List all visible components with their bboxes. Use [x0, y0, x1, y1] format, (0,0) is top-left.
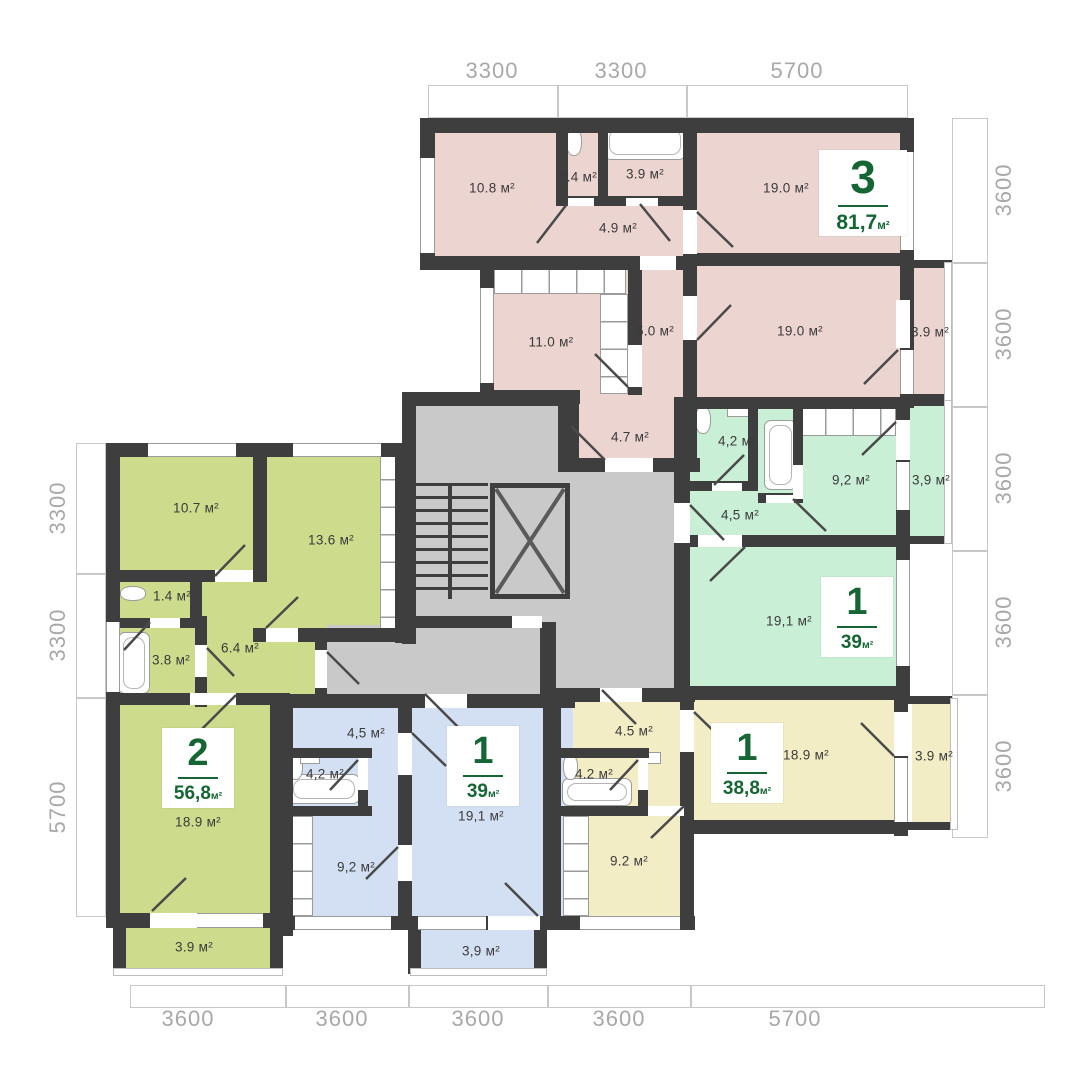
room-area-label: 19,1 м² [766, 614, 812, 629]
door-opening [683, 296, 697, 340]
door-opening [398, 733, 412, 775]
dimension-strip-divider [547, 985, 549, 1008]
dimension-label: 5700 [771, 58, 824, 84]
window [896, 462, 910, 510]
room-area-label: 3.8 м² [152, 653, 190, 668]
area-value: 38,8 [723, 778, 760, 799]
stairs-divider [448, 483, 452, 599]
wall [908, 822, 952, 830]
window [148, 443, 236, 457]
apartment-rooms-count: 2 [187, 734, 208, 772]
window [896, 560, 910, 666]
balcony-glazing [113, 968, 283, 976]
toilet-icon [695, 406, 711, 434]
kitchen-counter [563, 816, 589, 916]
badge-divider [463, 775, 503, 777]
area-unit: м² [862, 640, 873, 651]
room-area-label: 6.4 м² [221, 641, 259, 656]
wall [398, 694, 412, 922]
apartment-badge-blue[interactable]: 139м² [447, 726, 519, 806]
room-area-label: 11.0 м² [529, 335, 574, 350]
dimension-label: 3300 [45, 609, 71, 662]
dimension-label: 3600 [316, 1006, 369, 1032]
dimension-label: 3600 [991, 452, 1017, 505]
window [900, 350, 914, 394]
badge-divider [178, 777, 218, 779]
area-unit: м² [211, 791, 222, 802]
apartment-total-area: 38,8м² [723, 779, 771, 798]
dimension-label: 3300 [595, 58, 648, 84]
apartment-total-area: 56,8м² [174, 784, 222, 803]
apartment-badge-lime[interactable]: 256,8м² [162, 728, 234, 808]
door-opening [358, 758, 368, 790]
window [894, 758, 908, 822]
window [418, 916, 486, 930]
dimension-strip-divider [557, 85, 559, 118]
bathtub-icon [562, 778, 632, 806]
wall [561, 748, 649, 758]
room-area-label: 18.9 м² [175, 815, 221, 830]
kitchen-counter [494, 266, 626, 294]
wall [402, 392, 574, 406]
area-unit: м² [877, 220, 889, 232]
door-opening [648, 806, 684, 816]
room-area-label: 19,1 м² [458, 809, 504, 824]
area-value: 81,7 [836, 211, 877, 234]
door-opening [600, 688, 642, 702]
room-area-label: 3.9 м² [911, 325, 949, 340]
dimension-strip-divider [285, 985, 287, 1008]
room-area-label: 1.4 м² [559, 170, 597, 185]
room-area-label: 19.0 м² [777, 324, 823, 339]
dimension-label: 3600 [991, 164, 1017, 217]
door-opening [568, 198, 594, 206]
dimension-strip-divider [952, 694, 988, 696]
wall [253, 443, 267, 582]
dimension-label: 3300 [466, 58, 519, 84]
wall [543, 688, 561, 930]
apartment-total-area: 39м² [841, 633, 873, 652]
wall [558, 392, 572, 472]
dimension-strip-divider [408, 985, 410, 1008]
door-opening [488, 916, 540, 930]
room-area-label: 9,2 м² [832, 473, 870, 488]
door-opening [398, 845, 412, 881]
dimension-strip [428, 85, 908, 118]
door-opening [266, 628, 298, 642]
wall [694, 820, 908, 834]
dimension-label: 3600 [991, 596, 1017, 649]
dimension-strip-divider [952, 262, 988, 264]
door-opening [640, 256, 676, 270]
balcony-glazing [950, 698, 958, 830]
door-opening [638, 758, 648, 790]
area-value: 56,8 [174, 783, 211, 804]
dimension-label: 5700 [45, 781, 71, 834]
wall [908, 696, 952, 704]
area-value: 39 [841, 632, 862, 653]
wall [598, 125, 608, 203]
apartment-rooms-count: 3 [850, 154, 876, 200]
wall [106, 700, 120, 922]
wall [270, 920, 283, 972]
elevator [490, 483, 570, 599]
apartment-total-area: 39м² [467, 782, 499, 801]
wall [674, 397, 690, 700]
door-opening [680, 710, 694, 752]
apartment-badge-pink[interactable]: 381,7м² [819, 150, 907, 236]
room-area-label: 18.9 м² [783, 748, 829, 763]
room-area-label: 9.2 м² [610, 854, 648, 869]
badge-divider [837, 626, 877, 628]
wall [540, 622, 556, 700]
kitchen-counter [798, 406, 896, 436]
dimension-strip-divider [686, 85, 688, 118]
door-opening [425, 694, 467, 708]
room-area-label: 1.4 м² [153, 589, 191, 604]
door-opening [150, 913, 197, 928]
wall [676, 256, 688, 270]
room-area-label: 10.8 м² [469, 181, 515, 196]
door-opening [605, 458, 653, 472]
dimension-strip-divider [952, 406, 988, 408]
wall [556, 125, 568, 205]
window [580, 916, 680, 930]
room-area-label: 4,2 м² [306, 767, 344, 782]
dimension-label: 3600 [991, 308, 1017, 361]
door-opening [628, 345, 642, 387]
door-opening [712, 483, 742, 491]
wall [113, 920, 126, 972]
room-area-label: 13.6 м² [308, 533, 354, 548]
room-area-label: 4,5 м² [347, 726, 385, 741]
wall [480, 256, 640, 270]
area-unit: м² [760, 786, 771, 797]
room-area-label: 4,2 м² [718, 434, 756, 449]
dimension-label: 3600 [452, 1006, 505, 1032]
door-opening [896, 420, 910, 460]
window [295, 916, 391, 930]
badge-divider [727, 772, 767, 774]
window [106, 622, 120, 692]
room-area-label: 3.9 м² [626, 167, 664, 182]
dimension-strip-divider [76, 573, 106, 575]
wall [420, 118, 914, 133]
room-area-label: 3.9 м² [915, 749, 953, 764]
floor-plan: 10.8 м²1.4 м²3.9 м²4.9 м²19.0 м²11.0 м²5… [0, 0, 1080, 1080]
dimension-strip [130, 985, 1045, 1008]
apartment-badge-mint[interactable]: 139м² [821, 577, 893, 657]
door-opening [215, 570, 253, 582]
door-opening [195, 645, 207, 677]
wall [674, 686, 910, 700]
window [293, 443, 381, 457]
dimension-strip [76, 443, 106, 917]
room-area-label: 3,9 м² [462, 944, 500, 959]
wall [402, 392, 416, 644]
door-opening [793, 465, 803, 499]
room-area-label: 4,5 м² [721, 508, 759, 523]
dimension-strip-divider [690, 985, 692, 1008]
dimension-label: 3600 [991, 740, 1017, 793]
door-opening [315, 650, 327, 688]
room-area-label: 9,2 м² [337, 860, 375, 875]
dimension-label: 3300 [45, 482, 71, 535]
bathtub-icon [118, 632, 150, 694]
kitchen-counter [600, 294, 628, 394]
apartment-badge-yellow[interactable]: 138,8м² [711, 723, 783, 803]
window [480, 288, 494, 383]
badge-divider [838, 205, 887, 207]
apartment-region-yellow[interactable] [912, 702, 954, 828]
apartment-rooms-count: 1 [736, 729, 757, 767]
room-area-label: 3.9 м² [175, 940, 213, 955]
door-opening [150, 618, 180, 628]
room-area-label: 4.7 м² [611, 430, 649, 445]
room-area-label: 4.5 м² [615, 724, 653, 739]
door-opening [190, 693, 236, 705]
apartment-total-area: 81,7м² [836, 212, 889, 233]
wall [680, 806, 694, 930]
apartment-rooms-count: 1 [472, 732, 493, 770]
room-area-label: 5.0 м² [636, 324, 674, 339]
toilet-icon [120, 586, 146, 601]
balcony-glazing [410, 968, 547, 976]
door-opening [894, 712, 908, 756]
wall [408, 616, 512, 628]
door-opening [896, 300, 910, 348]
door-opening [683, 210, 697, 254]
dimension-label: 3600 [593, 1006, 646, 1032]
window [197, 913, 263, 928]
door-opening [698, 535, 742, 547]
wall [277, 806, 372, 816]
room-area-label: 4.9 м² [599, 221, 637, 236]
door-opening [674, 503, 690, 543]
dimension-label: 3600 [162, 1006, 215, 1032]
room-area-label: 10.7 м² [173, 501, 219, 516]
apartment-rooms-count: 1 [846, 583, 867, 621]
window [420, 158, 435, 253]
room-area-label: 3,9 м² [912, 473, 950, 488]
room-area-label: 19.0 м² [763, 181, 809, 196]
room-area-label: 4.2 м² [575, 767, 613, 782]
area-unit: м² [488, 789, 499, 800]
dimension-label: 5700 [769, 1006, 822, 1032]
door-opening [512, 616, 542, 628]
dimension-strip-divider [952, 550, 988, 552]
door-opening [766, 495, 794, 503]
wall [683, 253, 901, 266]
door-opening [626, 198, 658, 206]
area-value: 39 [467, 781, 488, 802]
dimension-strip-divider [76, 697, 106, 699]
